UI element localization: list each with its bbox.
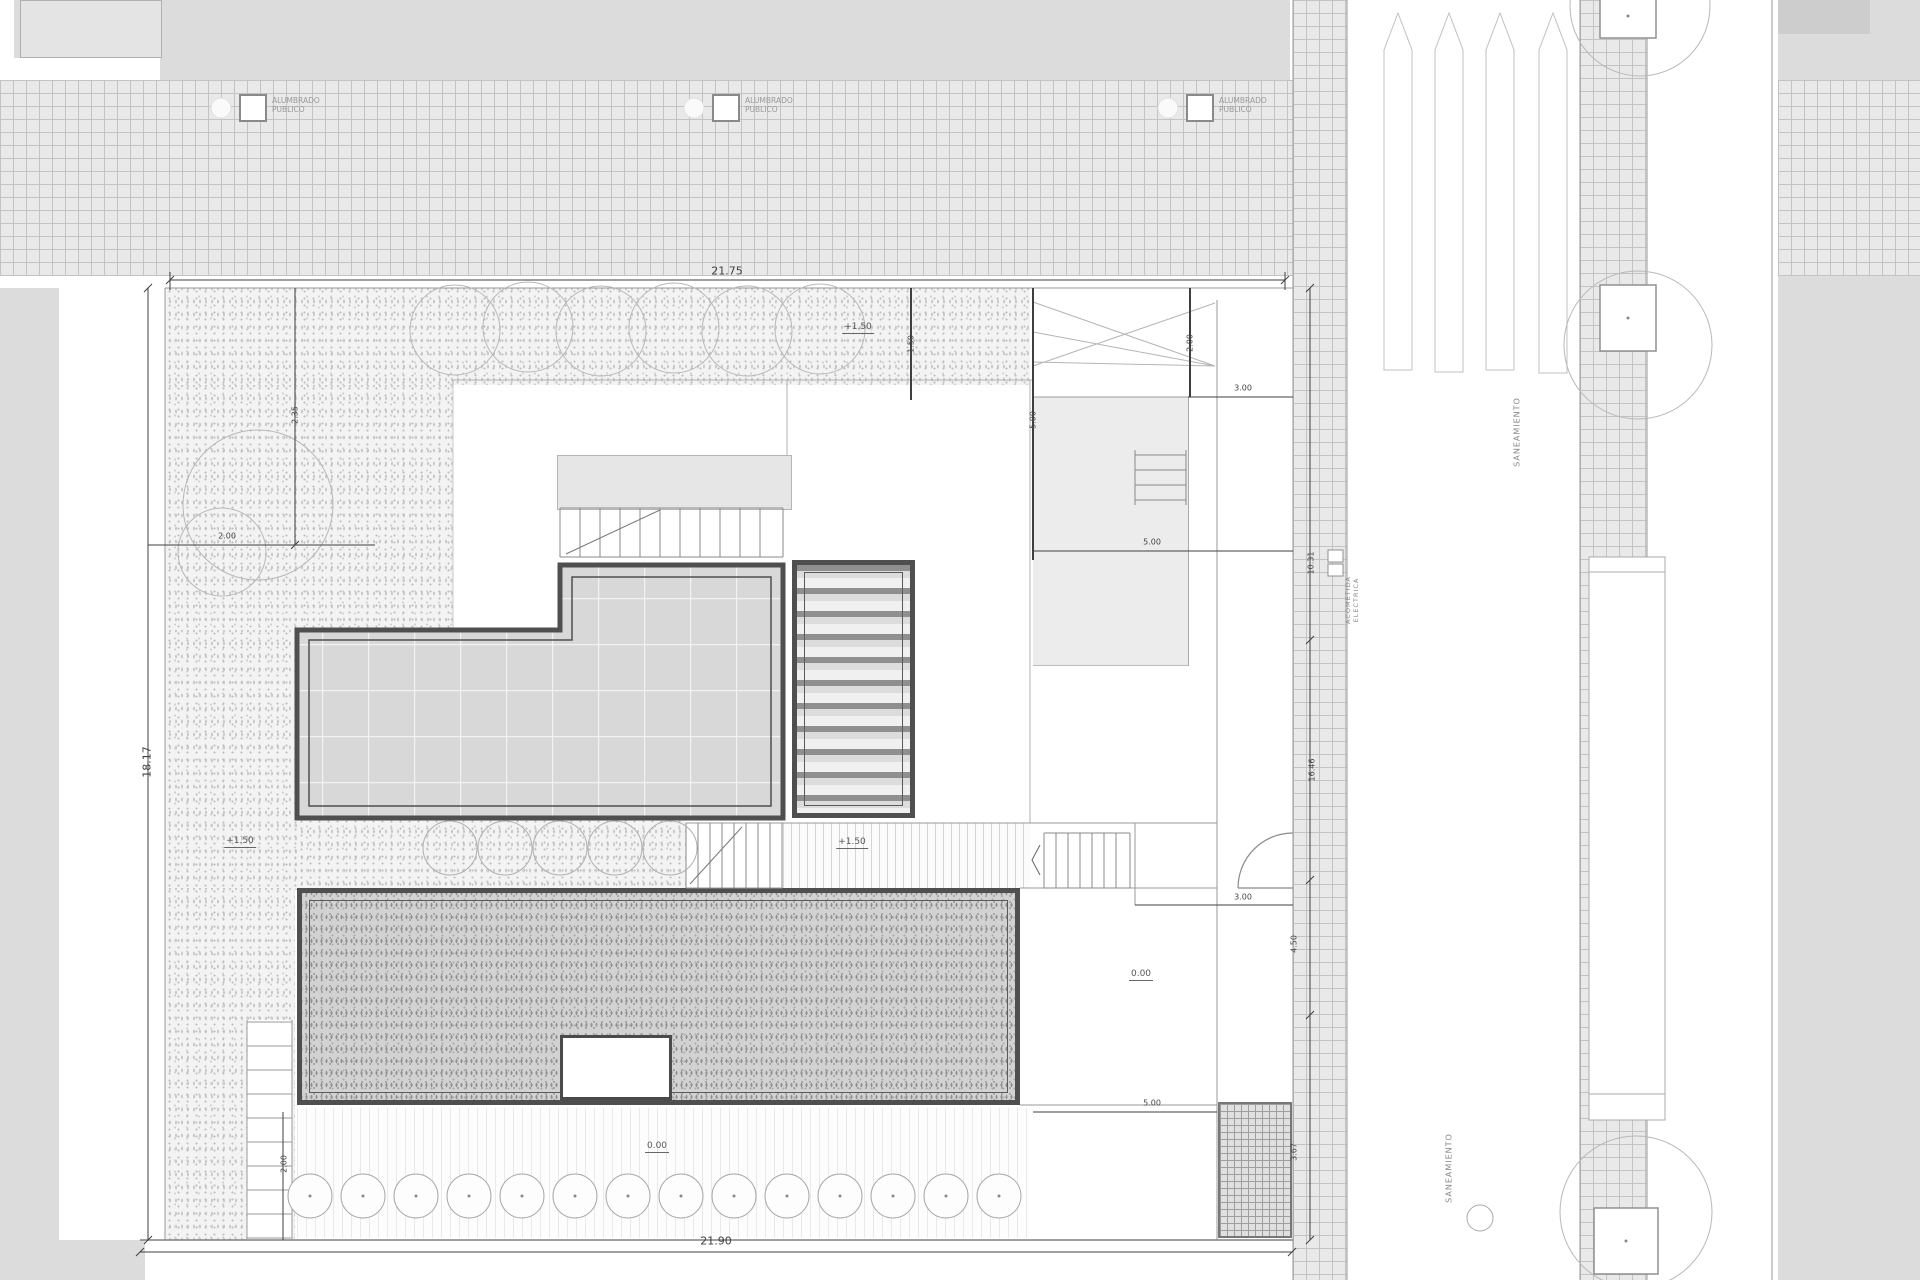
dim-right-4: 3.67 <box>1290 1143 1299 1161</box>
garage-stair <box>1135 450 1186 505</box>
note-saneamiento-bottom: SANEAMIENTO <box>1445 1133 1454 1203</box>
dim-small-4: 5.00 <box>1029 411 1038 429</box>
street-median <box>1589 557 1665 1120</box>
manhole-circle <box>1467 1205 1493 1231</box>
plan-linework <box>0 0 1920 1280</box>
note-saneamiento-top: SANEAMIENTO <box>1513 397 1522 467</box>
elevation-mark-2: +1.50 <box>224 836 256 848</box>
note-acometida-line1: ACOMETIDA <box>1344 576 1352 624</box>
left-garden-stair <box>247 1020 292 1240</box>
dim-small-8: 3.00 <box>1234 893 1252 902</box>
elevation-mark-5: 0.00 <box>645 1141 669 1153</box>
dim-small-11: 2.00 <box>280 1155 289 1173</box>
roof-grid-skylight <box>297 565 783 818</box>
note-acometida-line2: ELECTRICA <box>1352 576 1360 624</box>
dim-right-2: 16.46 <box>1308 759 1317 782</box>
dim-small-3: 1.50 <box>907 335 916 353</box>
paver-circle-row <box>288 1174 1021 1218</box>
dim-top: 21.75 <box>711 265 743 278</box>
right-stair <box>1032 833 1130 888</box>
door-swing <box>1238 833 1293 888</box>
dim-small-5: 2.00 <box>1186 334 1195 352</box>
small-stair-mid <box>686 823 782 888</box>
elevation-mark-4: 0.00 <box>1129 969 1153 981</box>
utility-boxes-strip <box>1328 550 1343 576</box>
dim-small-10: 5.00 <box>1143 1099 1161 1108</box>
dim-small-1: 2.00 <box>218 532 236 541</box>
dim-right-1: 10.31 <box>1307 552 1316 575</box>
elevation-mark-3: +1.50 <box>836 837 868 849</box>
streetlight-label-3: ALUMBRADO PUBLICO <box>1219 96 1267 114</box>
streetlight-label-1-line2: PUBLICO <box>272 105 320 114</box>
dim-small-6: 3.00 <box>1234 384 1252 393</box>
streetlight-label-1: ALUMBRADO PUBLICO <box>272 96 320 114</box>
streetlight-label-2: ALUMBRADO PUBLICO <box>745 96 793 114</box>
streetlight-label-2-line1: ALUMBRADO <box>745 96 793 105</box>
tree-left-large <box>178 430 333 596</box>
dim-right-3: 4.50 <box>1290 935 1299 953</box>
tree-row-top <box>410 282 865 376</box>
elevation-mark-1: +1.50 <box>842 322 874 334</box>
streetlight-label-1-line1: ALUMBRADO <box>272 96 320 105</box>
dim-bottom: 21.90 <box>700 1235 732 1248</box>
street-pickets <box>1384 13 1567 373</box>
streetlight-symbols <box>211 95 1213 121</box>
shrub-row-mid <box>423 821 697 875</box>
main-stair <box>560 508 783 557</box>
note-acometida: ACOMETIDA ELECTRICA <box>1344 576 1360 624</box>
site-plan-canvas: ALUMBRADO PUBLICO ALUMBRADO PUBLICO ALUM… <box>0 0 1920 1280</box>
streetlight-label-3-line2: PUBLICO <box>1219 105 1267 114</box>
streetlight-label-2-line2: PUBLICO <box>745 105 793 114</box>
streetlight-label-3-line1: ALUMBRADO <box>1219 96 1267 105</box>
dim-left: 18.17 <box>141 746 154 778</box>
dim-small-2: 2.35 <box>291 406 300 424</box>
dim-small-7: 5.00 <box>1143 538 1161 547</box>
